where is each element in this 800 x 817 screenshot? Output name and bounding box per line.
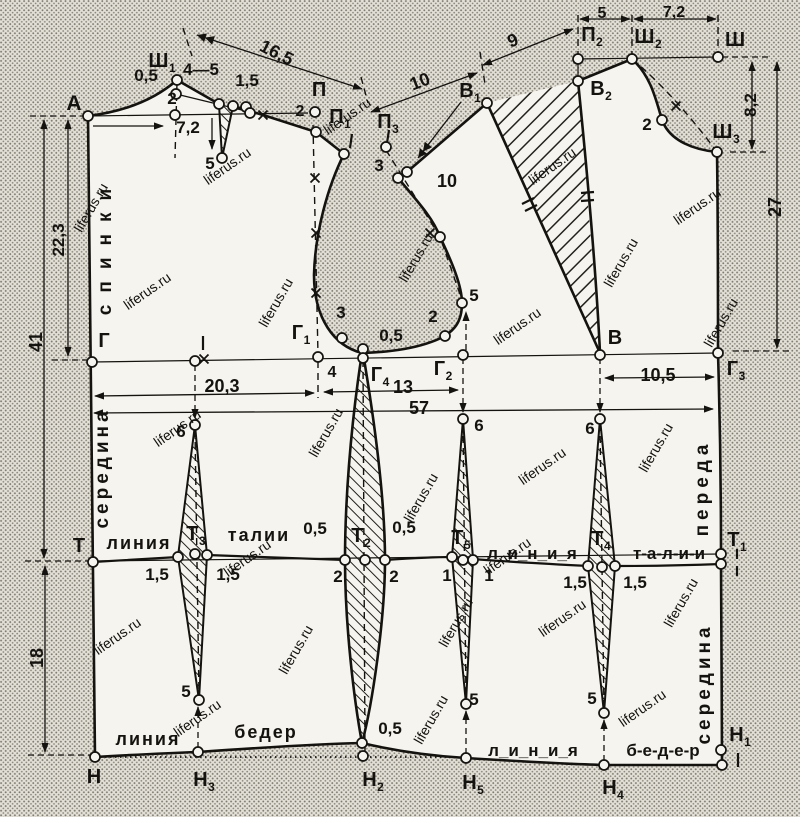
dim-5-hip1: 5: [181, 682, 190, 701]
pattern-point: [573, 76, 583, 86]
pattern-point: [173, 552, 183, 562]
pattern-point: [610, 561, 620, 571]
pattern-point: [340, 555, 350, 565]
back-piece: [88, 80, 362, 757]
dim-2-neck: 2: [167, 89, 176, 108]
text-beder-right: б-е-д-е-р: [626, 741, 699, 760]
pattern-point: [380, 555, 390, 565]
pattern-point: [597, 562, 607, 572]
pattern-point: [712, 147, 722, 157]
dim-3-armhole: 3: [374, 156, 383, 175]
pattern-point: [83, 111, 93, 121]
pattern-point: [402, 167, 412, 177]
point-T: Т: [73, 535, 85, 557]
pattern-point: [214, 99, 224, 109]
pattern-point: [627, 54, 637, 64]
pattern-point: [172, 75, 182, 85]
dim-2-armhole: 2: [428, 307, 437, 326]
dim-2-w2: 2: [389, 567, 398, 586]
pattern-point: [716, 745, 726, 755]
pattern-point: [360, 555, 370, 565]
point-A: А: [66, 92, 81, 115]
text-pereda: переда: [692, 440, 713, 537]
text-liniya-waist-left: линия: [107, 533, 172, 553]
dim-5-hip2: 5: [469, 690, 478, 709]
dim-5-hip3: 5: [587, 689, 596, 708]
dim-0-5-hip: 0,5: [378, 719, 402, 738]
dim-4-5: 4—5: [183, 60, 219, 79]
dim-1-5-shoulder: 1,5: [235, 71, 259, 90]
dim-10-transfer: 10: [437, 171, 457, 191]
pattern-point: [435, 232, 445, 242]
pattern-point: [339, 149, 349, 159]
pattern-point: [358, 751, 368, 761]
dim-3-armhole-low: 3: [336, 303, 345, 322]
text-beder-left: бедер: [234, 722, 298, 742]
pattern-point: [573, 54, 583, 64]
dim-18: 18: [27, 648, 47, 668]
dim-1-w1: 1: [442, 566, 451, 585]
pattern-point: [337, 333, 347, 343]
dim-6-front2: 6: [585, 419, 594, 438]
pattern-point: [440, 331, 450, 341]
pattern-point: [595, 414, 605, 424]
pattern-point: [713, 348, 723, 358]
dim-10-5: 10,5: [640, 365, 675, 385]
dim-6-front1: 6: [474, 416, 483, 435]
dim-0-5-armhole: 0,5: [379, 326, 403, 345]
dim-1-5-w1: 1,5: [145, 565, 169, 584]
dim-13: 13: [393, 377, 413, 397]
sewing-pattern-diagram: АШ10,54—51,527,2516,5П2П1П3310109В1П2Ш2Ш…: [0, 0, 800, 817]
pattern-point: [657, 115, 667, 125]
dim-2-front-neck: 2: [642, 115, 651, 134]
pattern-point: [458, 555, 468, 565]
pattern-point: [311, 127, 321, 137]
text-liniya-hip-left: линия: [116, 729, 181, 749]
dim-1-5-w3: 1,5: [563, 573, 587, 592]
pattern-point: [190, 356, 200, 366]
dim-41: 41: [26, 332, 46, 352]
pattern-point: [228, 101, 238, 111]
pattern-point: [468, 555, 478, 565]
point-N: Н: [87, 766, 101, 788]
dim-0-5-waist1: 0,5: [303, 519, 327, 538]
dim-8-2: 8,2: [741, 93, 760, 117]
pattern-point: [90, 752, 100, 762]
dim-2-w1: 2: [333, 567, 342, 586]
pattern-point: [381, 142, 391, 152]
pattern-point: [190, 549, 200, 559]
text-talii-right: т-а-л-и-и: [633, 544, 705, 563]
pattern-point: [457, 298, 467, 308]
dim-20-3: 20,3: [204, 376, 239, 396]
pattern-point: [461, 753, 471, 763]
pattern-point: [595, 350, 605, 360]
dim-5-armhole: 5: [469, 286, 478, 305]
dim-7-2-back: 7,2: [176, 118, 200, 137]
point-G: Г: [98, 330, 109, 352]
pattern-point: [458, 414, 468, 424]
dim-7-2-top: 7,2: [663, 4, 685, 21]
pattern-point: [393, 173, 403, 183]
pattern-point: [88, 557, 98, 567]
point-V: В: [608, 327, 622, 349]
pattern-point: [458, 350, 468, 360]
dim-5-top: 5: [598, 5, 607, 22]
text-seredina-left: середина: [92, 407, 113, 528]
pattern-point: [357, 738, 367, 748]
pattern-point: [202, 550, 212, 560]
dim-57: 57: [409, 398, 429, 418]
pattern-point: [583, 561, 593, 571]
pattern-point: [482, 98, 492, 108]
dim-27: 27: [765, 197, 785, 217]
point-P: П: [312, 79, 326, 101]
pattern-point: [713, 52, 723, 62]
dim-2-P: 2: [296, 103, 305, 120]
pattern-point: [599, 708, 609, 718]
dim-1-5-w4: 1,5: [623, 573, 647, 592]
dim-0-5-neck: 0,5: [134, 66, 158, 85]
text-seredina-right: середина: [694, 623, 715, 744]
pattern-point: [313, 352, 323, 362]
dim-4: 4: [328, 364, 337, 381]
pattern-point: [599, 760, 609, 770]
pattern-point: [717, 760, 727, 770]
pattern-point: [447, 552, 457, 562]
pattern-point: [245, 108, 255, 118]
pattern-point: [358, 353, 368, 363]
pattern-point: [310, 107, 320, 117]
point-Sh: Ш: [725, 29, 745, 51]
pattern-point: [193, 747, 203, 757]
pattern-point: [87, 357, 97, 367]
pattern-point: [716, 549, 726, 559]
dim-22-3: 22,3: [49, 223, 68, 256]
sewing-pattern-svg: АШ10,54—51,527,2516,5П2П1П3310109В1П2Ш2Ш…: [0, 0, 800, 817]
pattern-point: [716, 559, 726, 569]
text-liniya-hip-right: л_и_н_и_я: [488, 741, 578, 760]
